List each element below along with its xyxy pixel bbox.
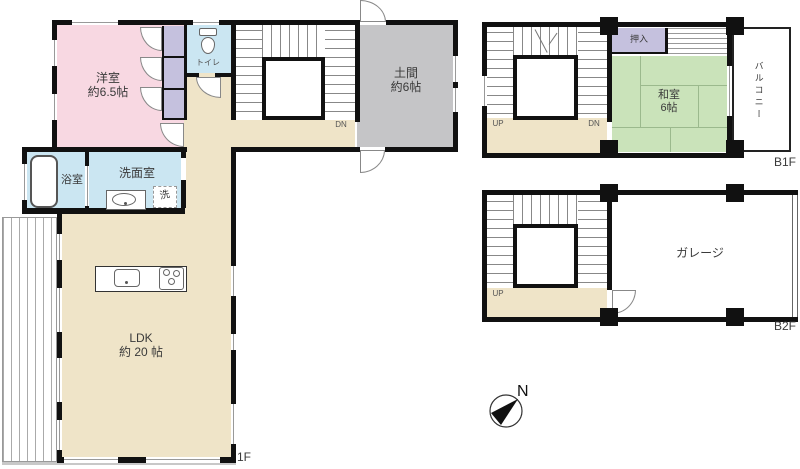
window [72, 20, 118, 25]
pillar [726, 308, 744, 326]
window [52, 94, 57, 120]
stove-burner-icon [168, 278, 175, 285]
floor-label-b1f: B1F [762, 155, 796, 169]
pillar [726, 140, 744, 158]
room-doma-label: 土間 約6帖 [375, 66, 437, 94]
stair-treads [487, 201, 513, 289]
room-size: 約6.5帖 [58, 85, 158, 99]
wall [386, 20, 458, 25]
wall [231, 147, 360, 152]
stair-treads [513, 195, 578, 224]
wall [22, 208, 185, 214]
stair-treads [513, 27, 578, 57]
closet-divider [164, 118, 184, 120]
pillar [600, 17, 618, 35]
window [57, 234, 62, 260]
stair-treads [325, 30, 355, 120]
room-balcony-label: バルコニー [753, 36, 764, 146]
pillar [600, 184, 618, 202]
entrance-door-arc [360, 0, 386, 22]
closet-divider [164, 56, 184, 58]
closet-front-line [612, 52, 667, 54]
window [453, 88, 458, 112]
wall [482, 317, 798, 322]
stair-void [513, 55, 578, 120]
room-name: 洋室 [58, 71, 158, 85]
closet-divider [164, 88, 184, 90]
closet-front-line [162, 26, 164, 120]
door-arc [360, 150, 385, 173]
hatched-area [668, 28, 727, 54]
floor-label-b2f: B2F [762, 319, 796, 333]
window [231, 404, 236, 444]
pillar [726, 184, 744, 202]
stair-up-label: UP [488, 289, 508, 298]
room-garage-label: ガレージ [650, 246, 750, 260]
window [231, 334, 236, 350]
window [22, 164, 27, 200]
room-size: 約6帖 [375, 80, 437, 94]
window [57, 358, 62, 402]
stair-up-label: UP [488, 119, 508, 128]
wood-deck [2, 217, 57, 462]
wall [184, 73, 187, 120]
wall [22, 147, 187, 152]
wall [355, 25, 360, 122]
window [231, 266, 236, 296]
room-size: 6帖 [639, 102, 699, 115]
window [453, 56, 458, 82]
room-name: 土間 [375, 66, 437, 80]
stove-burner-icon [173, 270, 180, 277]
window [193, 20, 219, 25]
floor-label-1f: 1F [237, 450, 263, 464]
toilet-tank-icon [199, 28, 217, 36]
tatami-line [670, 127, 671, 152]
hallway [184, 152, 231, 214]
wall [231, 20, 236, 120]
compass-needle [491, 399, 518, 425]
stair-treads [487, 32, 513, 120]
window [482, 76, 487, 106]
stair-dn-label: DN [583, 119, 605, 128]
window [52, 40, 57, 66]
kitchen-sink-icon [114, 269, 140, 287]
room-western-label: 洋室 約6.5帖 [58, 71, 158, 99]
window [57, 288, 62, 332]
room-name: 和室 [639, 89, 699, 102]
stair-dn-label: DN [329, 120, 353, 129]
wall [482, 190, 487, 322]
sink-dot [125, 281, 128, 284]
stair-void [513, 224, 578, 288]
wall [184, 25, 187, 73]
compass: N [483, 378, 543, 438]
pillar [726, 17, 744, 35]
stove-burner-icon [163, 269, 170, 276]
tatami-line [640, 85, 727, 86]
wall [482, 190, 798, 195]
stair-treads [262, 25, 325, 57]
stair-treads [236, 30, 262, 120]
floor-plan: 洗 洋室 約6.5帖 トイレ 土間 約6帖 浴室 洗面室 LDK 約 20 帖 … [0, 0, 800, 469]
bathtub-icon [30, 155, 58, 208]
room-japanese-label: 和室 6帖 [639, 89, 699, 115]
window [57, 420, 62, 450]
room-ldk-label: LDK 約 20 帖 [91, 331, 191, 359]
pillar [600, 140, 618, 158]
room-name: LDK [91, 331, 191, 345]
garage-opening [792, 195, 798, 317]
room-oshiire-label: 押入 [612, 34, 666, 45]
wall [453, 20, 458, 152]
pillar [600, 308, 618, 326]
washing-machine-icon: 洗 [153, 186, 177, 208]
faucet-dot [124, 202, 127, 205]
washing-machine-label: 洗 [153, 188, 177, 204]
door-opening [181, 158, 186, 180]
wall [385, 147, 458, 152]
window [146, 457, 220, 463]
room-bath-label: 浴室 [56, 174, 88, 187]
room-washroom-label: 洗面室 [107, 166, 167, 180]
closet-strip [164, 26, 184, 120]
room-toilet-label: トイレ [188, 58, 228, 67]
compass-north-label: N [517, 383, 529, 400]
stair-void [262, 57, 325, 120]
window [64, 457, 118, 463]
room-size: 約 20 帖 [91, 345, 191, 359]
